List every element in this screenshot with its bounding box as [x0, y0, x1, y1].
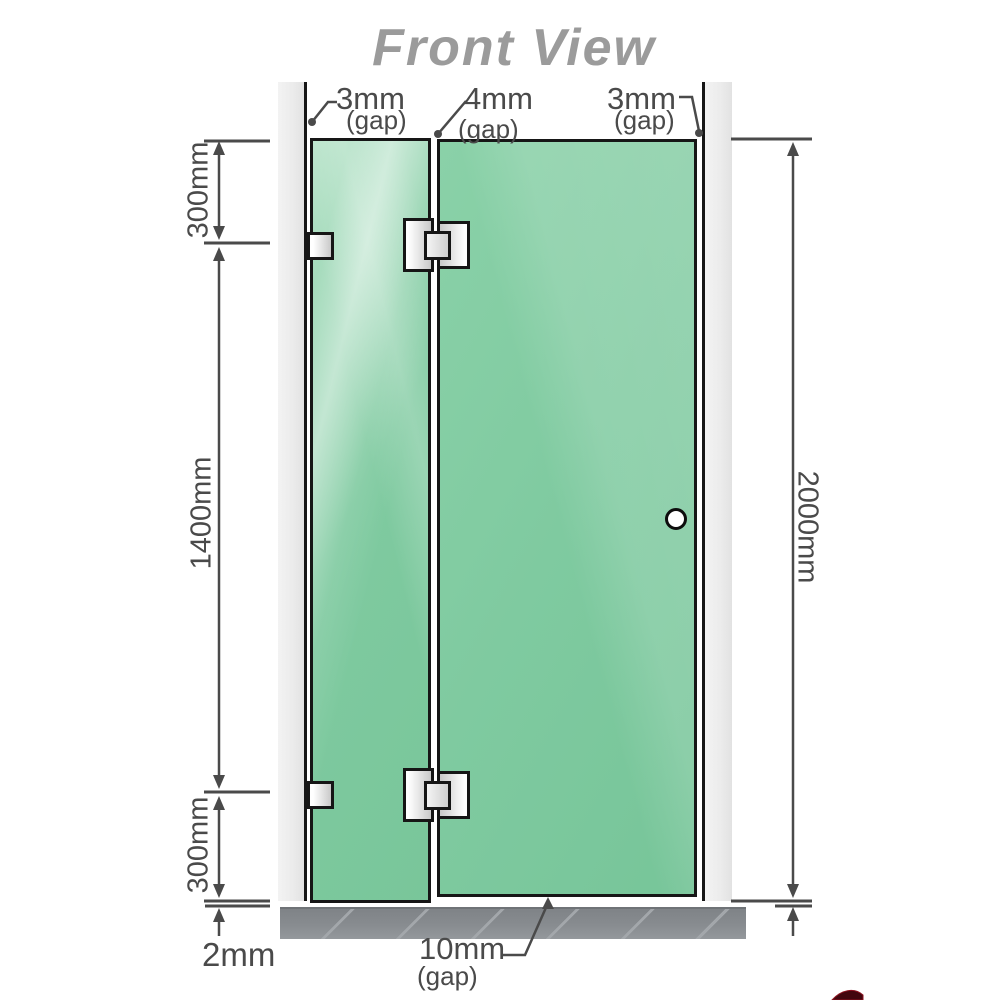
door-glass-panel	[437, 139, 697, 897]
dim-label-300-bottom: 300mm	[185, 797, 214, 894]
leader-gap-left	[308, 102, 337, 126]
shower-screen-front-view-diagram: Front View	[0, 0, 1000, 1000]
dim-line-2mm-right	[787, 907, 799, 936]
dim-line-300-bottom	[213, 796, 225, 898]
hinge-knuckle	[424, 781, 451, 810]
dim-label-2mm: 2mm	[202, 938, 275, 971]
floor-base	[280, 907, 746, 939]
right-wall-channel	[702, 82, 732, 901]
gap-label-bottom-caption: (gap)	[417, 963, 478, 989]
door-handle-knob	[665, 508, 687, 530]
leader-gap-right	[679, 97, 703, 137]
wall-bracket-top	[307, 232, 334, 260]
dim-label-300-top: 300mm	[185, 142, 214, 239]
glass-hinge-bottom	[403, 768, 470, 822]
hinge-knuckle	[424, 231, 451, 260]
gap-label-right-caption: (gap)	[614, 107, 675, 133]
dim-label-1400: 1400mm	[188, 457, 217, 570]
wall-bracket-bottom	[307, 781, 334, 809]
gap-label-middle-caption: (gap)	[458, 116, 519, 142]
glass-hinge-top	[403, 218, 470, 272]
gap-label-bottom-value: 10mm	[419, 933, 505, 964]
dim-line-300-top	[213, 141, 225, 240]
gap-label-middle-value: 4mm	[464, 83, 533, 114]
dim-label-2000: 2000mm	[793, 471, 822, 584]
gap-label-left-caption: (gap)	[346, 107, 407, 133]
diagram-title: Front View	[372, 22, 656, 74]
left-wall-channel	[278, 82, 307, 901]
dim-line-2mm	[213, 908, 225, 936]
